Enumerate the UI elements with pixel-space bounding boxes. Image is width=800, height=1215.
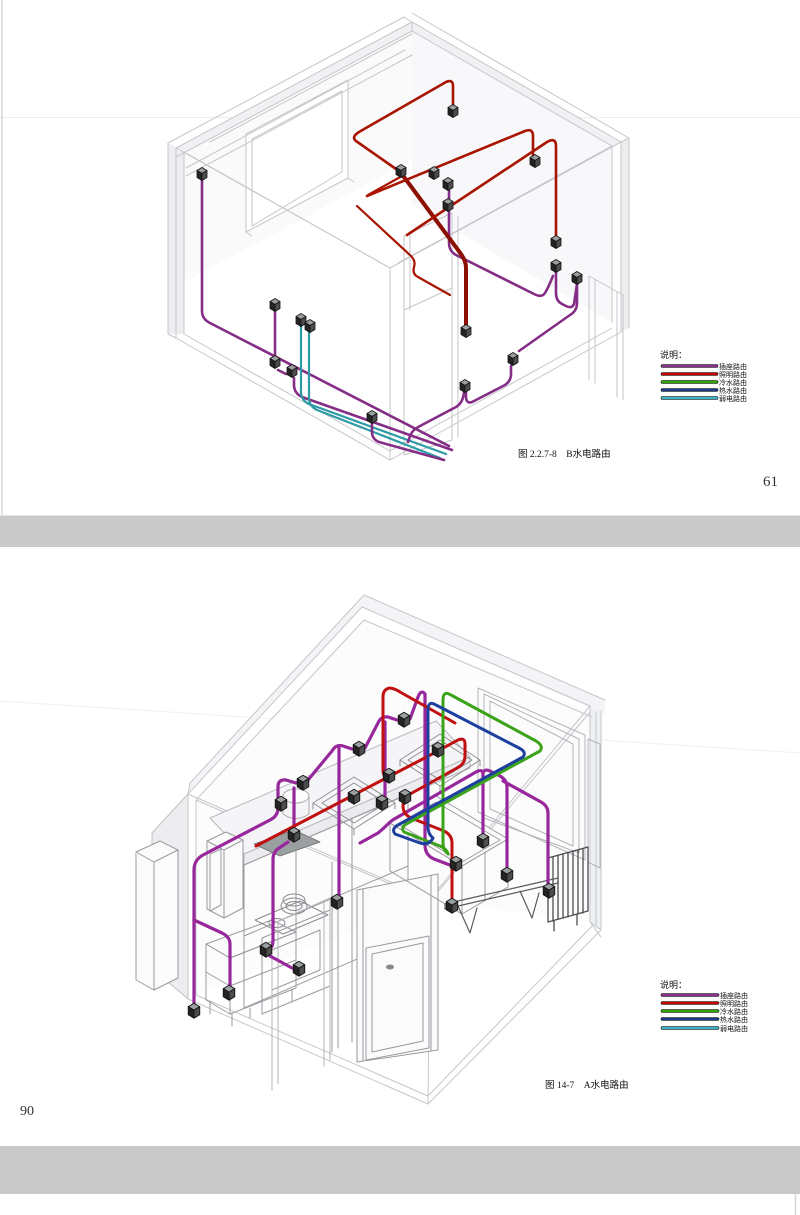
svg-text:照明路由: 照明路由: [720, 999, 748, 1008]
svg-text:说明：: 说明：: [660, 349, 687, 360]
svg-text:冷水路由: 冷水路由: [720, 1007, 748, 1016]
svg-text:热水路由: 热水路由: [720, 1015, 748, 1024]
svg-text:弱电路由: 弱电路由: [719, 394, 747, 403]
svg-text:照明路由: 照明路由: [719, 370, 747, 379]
svg-text:说明：: 说明：: [660, 979, 687, 990]
svg-text:热水路由: 热水路由: [719, 386, 747, 395]
svg-text:61: 61: [763, 474, 778, 490]
svg-text:图 2.2.7-8 B水电路由: 图 2.2.7-8 B水电路由: [518, 448, 611, 460]
svg-text:冷水路由: 冷水路由: [719, 378, 747, 387]
svg-text:插座路由: 插座路由: [719, 362, 747, 371]
svg-text:图 14-7 A水电路由: 图 14-7 A水电路由: [545, 1079, 629, 1091]
svg-text:90: 90: [20, 1104, 34, 1119]
svg-text:弱电路由: 弱电路由: [720, 1024, 748, 1033]
svg-text:插座路由: 插座路由: [720, 991, 748, 1000]
